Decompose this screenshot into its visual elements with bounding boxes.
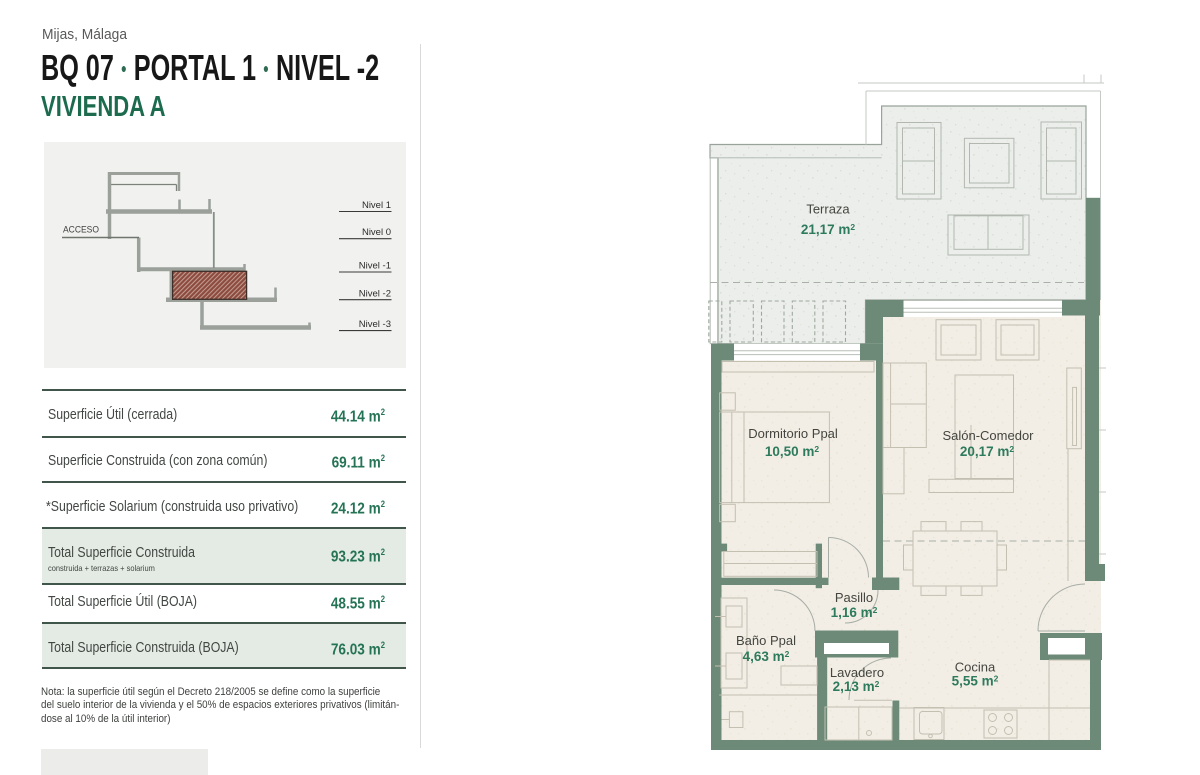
svg-text:1,16 m2: 1,16 m2 xyxy=(831,605,878,620)
svg-text:Terraza: Terraza xyxy=(806,202,850,217)
svg-text:Dormitorio Ppal: Dormitorio Ppal xyxy=(748,426,838,441)
svg-text:10,50 m2: 10,50 m2 xyxy=(765,444,820,459)
svg-text:20,17 m2: 20,17 m2 xyxy=(960,444,1015,459)
svg-text:Baño Ppal: Baño Ppal xyxy=(736,633,796,648)
svg-text:4,63 m2: 4,63 m2 xyxy=(743,649,790,664)
svg-text:Lavadero: Lavadero xyxy=(830,665,884,680)
svg-text:2,13 m2: 2,13 m2 xyxy=(833,679,880,694)
svg-text:21,17 m2: 21,17 m2 xyxy=(801,222,856,237)
svg-text:5,55 m2: 5,55 m2 xyxy=(952,674,999,689)
svg-text:Cocina: Cocina xyxy=(955,660,996,675)
svg-text:Salón-Comedor: Salón-Comedor xyxy=(942,428,1034,443)
svg-text:Pasillo: Pasillo xyxy=(835,590,873,605)
